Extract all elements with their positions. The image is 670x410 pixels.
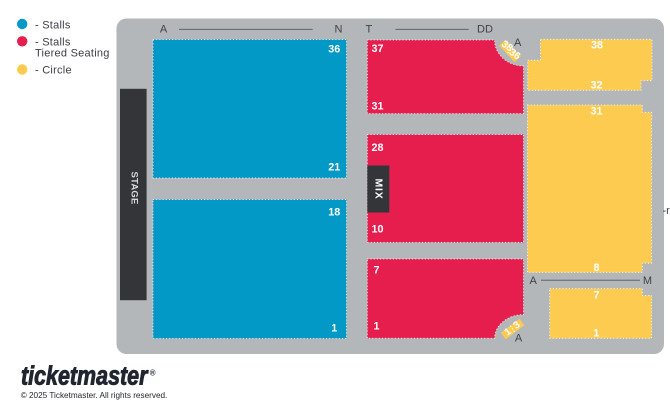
svg-text:31: 31 (590, 106, 602, 118)
svg-text:1: 1 (374, 321, 380, 333)
svg-text:- Circle: - Circle (35, 65, 72, 77)
svg-text:1: 1 (593, 328, 599, 340)
svg-text:7: 7 (374, 265, 380, 277)
svg-text:A: A (514, 37, 522, 49)
svg-text:37: 37 (372, 43, 384, 55)
svg-text:1: 1 (331, 322, 337, 334)
svg-text:28: 28 (372, 142, 384, 154)
svg-text:8: 8 (593, 262, 599, 274)
svg-text:32: 32 (590, 80, 602, 92)
svg-text:10: 10 (372, 224, 384, 236)
svg-text:31: 31 (372, 100, 384, 112)
svg-text:36: 36 (328, 44, 340, 56)
svg-text:MIX: MIX (372, 178, 384, 199)
svg-text:M: M (643, 275, 652, 287)
svg-text:38: 38 (591, 40, 603, 52)
svg-text:®: ® (150, 368, 156, 377)
svg-text:T: T (366, 24, 373, 36)
svg-text:- Stalls: - Stalls (35, 19, 71, 31)
svg-text:A: A (515, 332, 523, 344)
svg-text:A: A (160, 24, 168, 36)
svg-text:ticketmaster: ticketmaster (21, 362, 149, 391)
svg-text:A: A (530, 275, 538, 287)
svg-text:DD: DD (477, 24, 493, 36)
svg-text:18: 18 (328, 206, 340, 218)
svg-text:STAGE: STAGE (129, 171, 140, 204)
svg-text:© 2025 Ticketmaster. All right: © 2025 Ticketmaster. All rights reserved… (21, 391, 168, 400)
svg-text:-r: -r (663, 205, 670, 217)
svg-text:Tiered Seating: Tiered Seating (35, 47, 110, 59)
svg-text:N: N (335, 24, 343, 36)
svg-text:21: 21 (328, 162, 340, 174)
svg-text:7: 7 (593, 290, 599, 302)
